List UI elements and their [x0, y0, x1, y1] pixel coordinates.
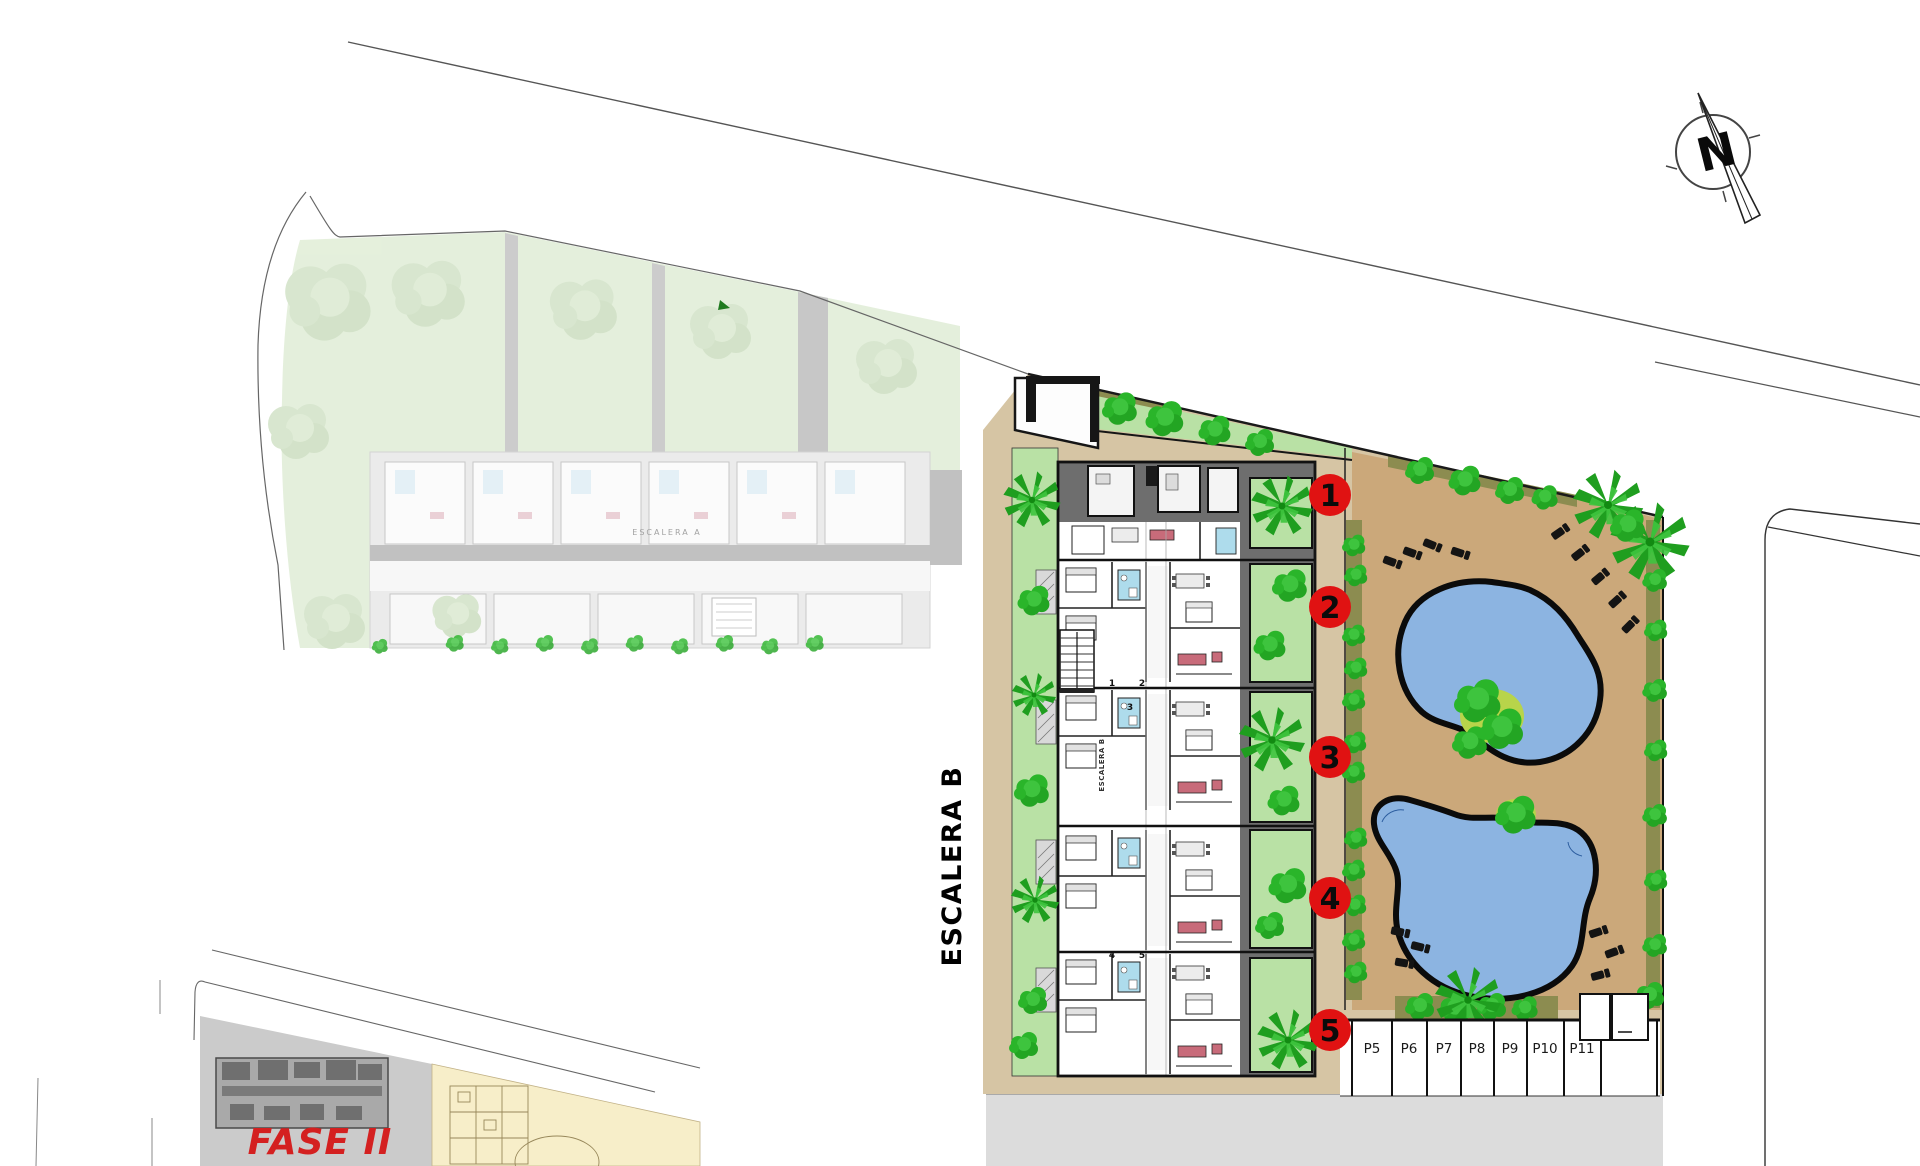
- parking-space-label: P8: [1469, 1041, 1486, 1057]
- svg-text:2: 2: [1320, 591, 1341, 626]
- inset-fase1-site: [432, 1064, 700, 1166]
- faded-building-escalera-a: ESCALERA A: [268, 232, 962, 649]
- utility-boxes: [1580, 994, 1648, 1040]
- unit-marker-5: 5: [1309, 1009, 1351, 1051]
- faded-tree: [268, 404, 329, 459]
- site-plan-drawing: ESCALERA A: [0, 0, 1920, 1166]
- patio: [1036, 840, 1056, 884]
- escalera-b-inner-label: ESCALERA B: [1098, 738, 1106, 791]
- svg-text:4: 4: [1320, 882, 1341, 917]
- corner-street-outer-edge: [1765, 509, 1920, 1166]
- door-number: 4: [1109, 951, 1115, 961]
- road-strip: [986, 1094, 1663, 1166]
- svg-text:1: 1: [1320, 479, 1341, 514]
- unit-marker-1: 1: [1309, 474, 1351, 516]
- door-number: 5: [1139, 951, 1145, 961]
- corner-street-inner-edge: [1768, 527, 1920, 556]
- door-number: 1: [1109, 679, 1115, 689]
- door-number: 3: [1127, 703, 1133, 713]
- main-road-lower-edge: [1655, 362, 1920, 417]
- compass-north-letter: N: [1691, 121, 1741, 183]
- inset-fase2-building: [216, 1058, 388, 1128]
- private-gardens: [1250, 478, 1312, 1072]
- inset-road-line: [36, 980, 160, 1166]
- fase-ii-label: FASE II: [248, 1122, 393, 1163]
- door-number: 2: [1139, 679, 1145, 689]
- unit-marker-4: 4: [1309, 877, 1351, 919]
- north-compass: N: [1666, 93, 1760, 223]
- escalera-a-label: ESCALERA A: [632, 528, 701, 537]
- svg-text:5: 5: [1320, 1014, 1341, 1049]
- unit-marker-3: 3: [1309, 736, 1351, 778]
- phase-inset: FASE II: [36, 950, 700, 1166]
- parking-space-label: P11: [1569, 1041, 1594, 1057]
- parking-space-label: P7: [1436, 1041, 1453, 1057]
- site-plan-canvas: ESCALERA A: [0, 0, 1920, 1166]
- penthouse-volumes: [1088, 466, 1238, 516]
- escalera-b-label: ESCALERA B: [937, 766, 968, 967]
- parking-space-label: P10: [1532, 1041, 1557, 1057]
- parking-space-label: P6: [1401, 1041, 1418, 1057]
- building-escalera-b: [1036, 462, 1315, 1076]
- stairwell: [1060, 630, 1094, 693]
- svg-text:3: 3: [1320, 741, 1341, 776]
- parking-space-label: P9: [1502, 1041, 1519, 1057]
- parking-space-label: P5: [1364, 1041, 1381, 1057]
- unit-marker-2: 2: [1309, 586, 1351, 628]
